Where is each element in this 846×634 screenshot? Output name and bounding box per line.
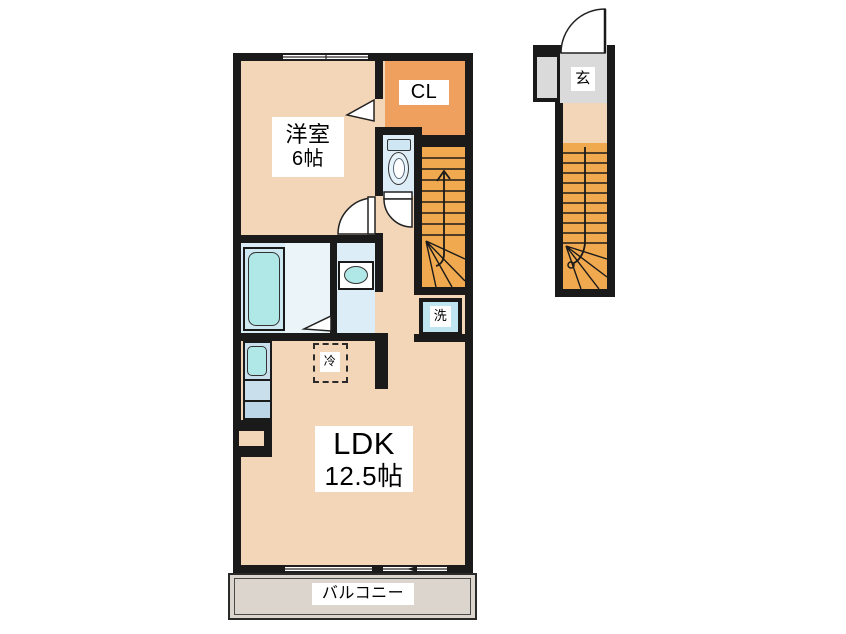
closet-text: CL	[411, 81, 438, 103]
toilet-door-swing	[384, 199, 412, 227]
bedroom-name: 洋室	[285, 123, 330, 148]
ldk-area: 12.5帖	[324, 462, 403, 491]
ldk-window-slide-arrow	[407, 566, 417, 572]
balcony-text: バルコニー	[322, 585, 404, 603]
stairwell-arrow-shaft	[574, 147, 585, 263]
entrance-door-swing	[561, 9, 605, 53]
entrance-label: 玄	[571, 67, 595, 91]
closet-label: CL	[399, 80, 449, 105]
refrigerator-text: 冷	[324, 355, 337, 368]
unit-stairs-winders	[426, 241, 465, 287]
washer-text: 洗	[434, 309, 448, 324]
ldk-label: LDK 12.5帖	[315, 426, 413, 492]
toilet-door-leaf	[384, 192, 412, 199]
bedroom-area: 6帖	[292, 148, 324, 170]
refrigerator-label: 冷	[320, 352, 340, 372]
closet-opening-marker	[347, 100, 374, 121]
bedroom-label: 洋室 6帖	[272, 117, 344, 177]
bath-door-marker	[304, 316, 331, 331]
balcony-label: バルコニー	[312, 583, 414, 605]
bedroom-door-leaf	[368, 197, 375, 234]
ldk-name: LDK	[333, 427, 395, 462]
bedroom-window-mullion	[283, 54, 368, 60]
entrance-text: 玄	[575, 71, 591, 88]
floorplan-canvas: 洋室 6帖 CL LDK 12.5帖 バルコニー 洗 冷 玄	[0, 0, 846, 634]
washer-label: 洗	[430, 306, 451, 327]
